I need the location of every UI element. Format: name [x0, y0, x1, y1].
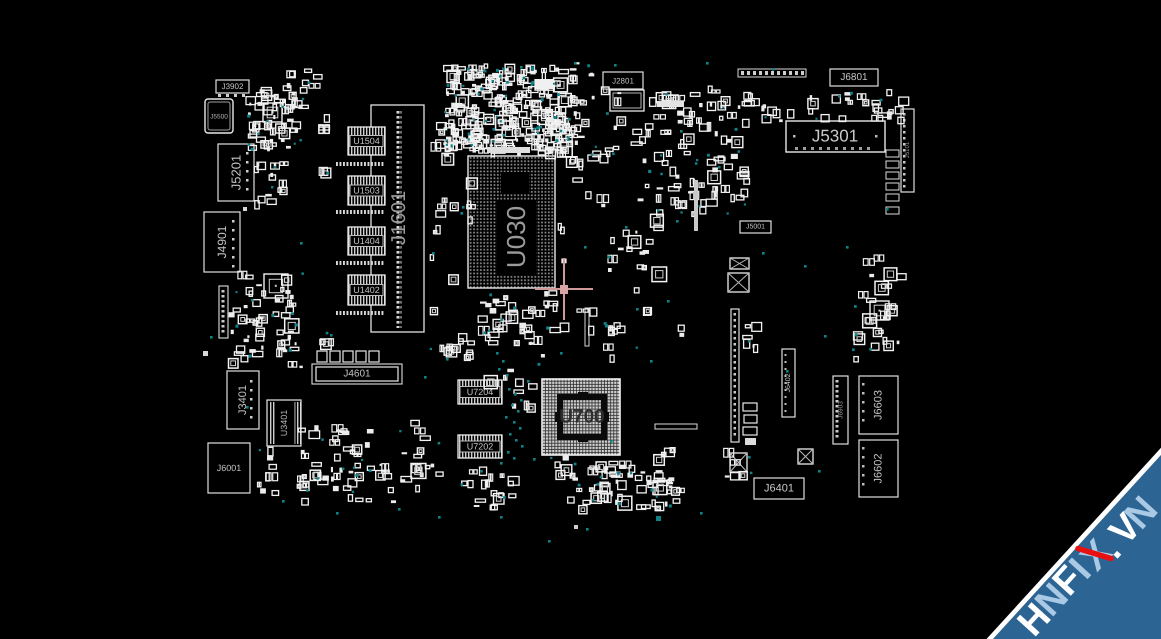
svg-text:U3401: U3401 — [279, 410, 289, 437]
svg-text:J6903: J6903 — [838, 401, 845, 419]
svg-text:J6603: J6603 — [873, 390, 885, 420]
svg-text:U1503: U1503 — [353, 186, 380, 196]
svg-text:U030: U030 — [501, 206, 531, 268]
svg-text:J6602: J6602 — [873, 454, 885, 484]
svg-text:J5201: J5201 — [229, 155, 244, 190]
svg-text:J5500: J5500 — [210, 114, 228, 121]
svg-text:J4601: J4601 — [343, 369, 371, 380]
svg-text:J5001: J5001 — [746, 224, 765, 231]
svg-text:J3401: J3401 — [237, 385, 249, 415]
svg-text:J6401: J6401 — [764, 483, 794, 495]
svg-text:J3902: J3902 — [222, 82, 244, 91]
svg-text:J1601: J1601 — [388, 191, 410, 246]
svg-text:J6801: J6801 — [840, 72, 868, 83]
svg-text:J5101: J5101 — [904, 141, 911, 158]
svg-text:U700: U700 — [559, 407, 604, 428]
svg-text:J5301: J5301 — [812, 127, 858, 146]
svg-text:U7202: U7202 — [467, 442, 494, 452]
svg-text:J2801: J2801 — [612, 77, 634, 86]
svg-text:U1404: U1404 — [353, 236, 380, 246]
svg-text:J6001: J6001 — [217, 463, 242, 473]
svg-text:U1402: U1402 — [353, 285, 380, 295]
svg-text:U1504: U1504 — [353, 136, 380, 146]
svg-text:J4901: J4901 — [215, 225, 229, 258]
